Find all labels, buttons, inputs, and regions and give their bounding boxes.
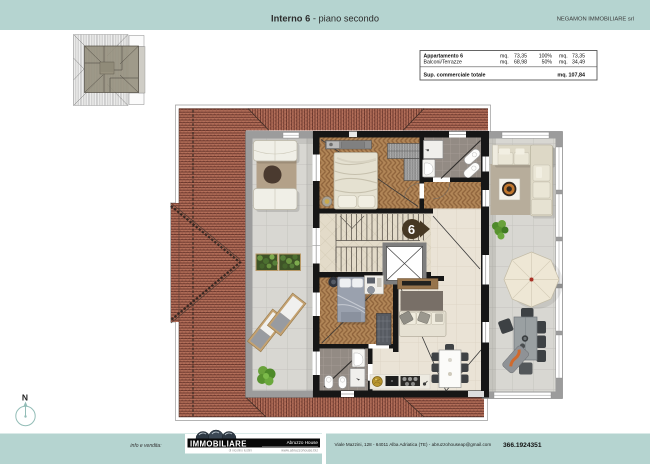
svg-text:mq.: mq. [500, 60, 509, 66]
svg-text:Abruzzo House: Abruzzo House [287, 440, 319, 445]
svg-text:50%: 50% [542, 60, 553, 66]
svg-text:6: 6 [408, 222, 415, 237]
svg-text:Interno 6 - piano secondo: Interno 6 - piano secondo [271, 14, 379, 24]
svg-text:34,49: 34,49 [572, 60, 585, 66]
svg-text:IMMOBILIARE: IMMOBILIARE [190, 439, 247, 448]
svg-text:NEGAMON IMMOBILIARE srl: NEGAMON IMMOBILIARE srl [557, 17, 634, 23]
svg-text:info e vendita:: info e vendita: [130, 443, 162, 449]
svg-text:68,98: 68,98 [514, 60, 527, 66]
svg-text:www.abruzzohouse.biz: www.abruzzohouse.biz [281, 449, 318, 453]
svg-text:mq.: mq. [559, 60, 568, 66]
svg-text:Sup. commerciale totale: Sup. commerciale totale [424, 73, 486, 79]
svg-text:Viale Mazzini, 128 - 64011 Alb: Viale Mazzini, 128 - 64011 Alba Adriatic… [335, 442, 492, 447]
svg-text:di nicolino iustini: di nicolino iustini [229, 449, 253, 453]
svg-text:366.1924351: 366.1924351 [503, 442, 542, 449]
svg-text:N: N [22, 393, 28, 403]
svg-text:Balconi/Terrazze: Balconi/Terrazze [424, 60, 462, 66]
svg-text:mq. 107,84: mq. 107,84 [557, 73, 585, 79]
